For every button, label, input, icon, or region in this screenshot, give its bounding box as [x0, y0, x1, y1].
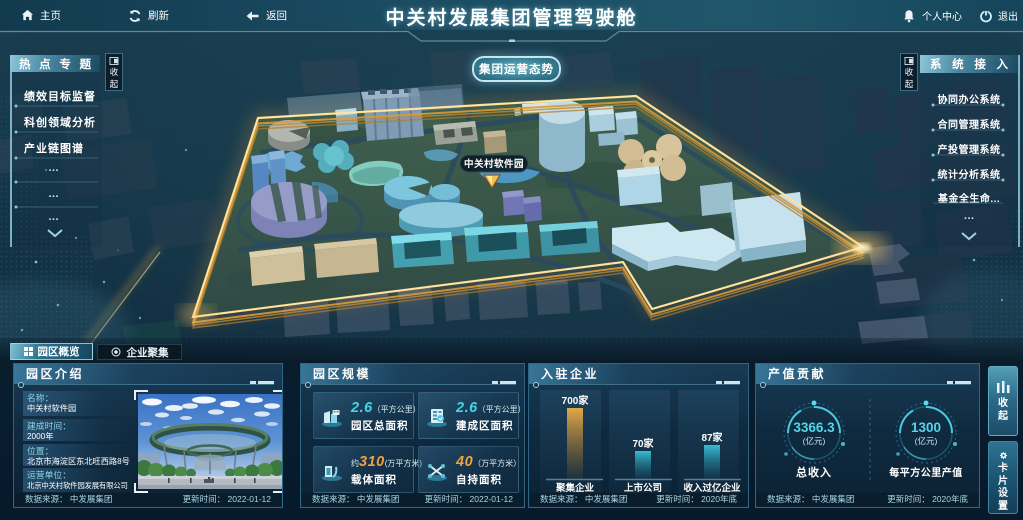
- svg-text:中关村软件园: 中关村软件园: [464, 158, 524, 170]
- svg-text:(亿元): (亿元): [915, 436, 938, 446]
- svg-text:(亿元): (亿元): [803, 436, 826, 446]
- svg-text:每平方公里产值: 每平方公里产值: [889, 466, 963, 479]
- svg-text:70家: 70家: [632, 437, 654, 450]
- svg-text:1300: 1300: [911, 420, 941, 435]
- svg-text:87家: 87家: [701, 431, 723, 444]
- svg-text:700家: 700家: [562, 394, 590, 407]
- svg-text:3366.3: 3366.3: [793, 420, 835, 435]
- svg-text:总收入: 总收入: [796, 465, 832, 479]
